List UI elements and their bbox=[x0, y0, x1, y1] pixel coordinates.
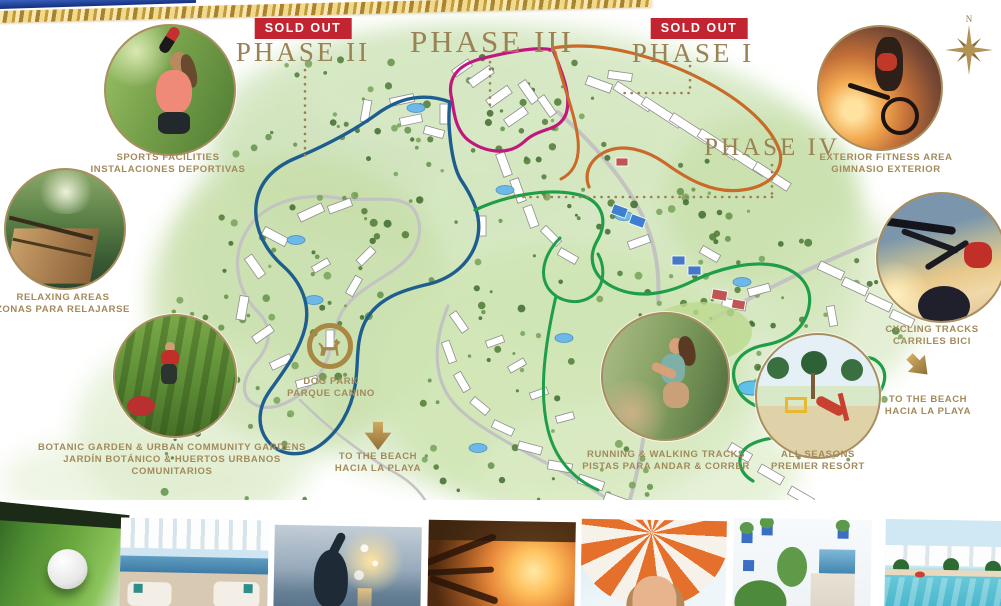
bike-wheel bbox=[881, 97, 919, 135]
cushion-1 bbox=[134, 584, 143, 593]
callout-cycling-caption: CYCLING TRACKS CARRILES BICI bbox=[767, 324, 1001, 348]
dark-backdrop bbox=[0, 501, 129, 531]
phase-1-label: PHASE I bbox=[632, 38, 754, 69]
beach-arrow-down-icon bbox=[363, 421, 393, 451]
pool-deck bbox=[885, 569, 1001, 577]
red-crops bbox=[127, 396, 155, 416]
photo-pool-resort bbox=[884, 519, 1001, 606]
athlete-shirt bbox=[877, 53, 897, 71]
photo-splash bbox=[273, 525, 422, 606]
front-wheel bbox=[918, 286, 970, 323]
beach-center-caption: TO THE BEACH HACIA LA PLAYA bbox=[213, 451, 543, 475]
sea-view bbox=[819, 549, 855, 574]
sold-out-badge-phase-2: SOLD OUT bbox=[255, 18, 352, 39]
photo-strip bbox=[0, 500, 1001, 606]
sky-gap bbox=[36, 170, 96, 214]
callout-allseasons-caption: ALL SEASONS PREMIER RESORT bbox=[653, 449, 983, 473]
splash-drop-1 bbox=[360, 544, 368, 552]
runner-torso bbox=[663, 382, 689, 408]
player-shorts bbox=[158, 112, 190, 134]
cushion-2 bbox=[244, 584, 253, 593]
callout-fitness-photo bbox=[817, 25, 943, 151]
trail-path bbox=[601, 380, 671, 441]
callout-relaxing-photo bbox=[4, 168, 126, 290]
dog-park-badge bbox=[307, 323, 353, 369]
player-shirt bbox=[156, 70, 192, 114]
palm-3 bbox=[841, 359, 863, 381]
phase-2-label: PHASE II bbox=[236, 37, 370, 68]
callout-cycling-photo bbox=[876, 192, 1001, 323]
dog-icon bbox=[317, 335, 343, 357]
plants-mid bbox=[777, 547, 808, 588]
svg-text:N: N bbox=[966, 14, 973, 24]
photo-golf bbox=[0, 501, 129, 606]
sofa-right bbox=[213, 581, 260, 606]
rider-shorts bbox=[964, 242, 992, 268]
bather-silhouette bbox=[313, 549, 348, 606]
palm-2 bbox=[801, 351, 827, 375]
photo-terrace bbox=[119, 517, 269, 606]
phase-3-label: PHASE III bbox=[410, 24, 574, 60]
callout-relaxing-caption: RELAXING AREAS ZONAS PARA RELAJARSE bbox=[0, 292, 228, 316]
masterplan-page: SOLD OUT PHASE II PHASE III SOLD OUT PHA… bbox=[0, 0, 1001, 606]
palm-1 bbox=[767, 357, 789, 379]
beach-right-caption: TO THE BEACH HACIA LA PLAYA bbox=[763, 394, 1001, 418]
sun-reflection bbox=[357, 588, 372, 606]
pool-ripples bbox=[884, 577, 1001, 606]
photo-sunset-palms bbox=[427, 520, 576, 606]
dog-park-caption: DOG PARK PARQUE CANINO bbox=[166, 376, 496, 400]
callout-sports-photo bbox=[104, 24, 236, 156]
sold-out-badge-phase-1: SOLD OUT bbox=[651, 18, 748, 39]
splash-drop-2 bbox=[372, 560, 378, 566]
golf-ball bbox=[46, 547, 90, 591]
palm-frond-2 bbox=[427, 566, 494, 576]
compass-rose-icon: N bbox=[943, 12, 995, 78]
palm-canopy bbox=[429, 520, 576, 543]
blue-pot-3 bbox=[743, 560, 754, 571]
callout-running-photo bbox=[601, 312, 730, 441]
photo-village bbox=[732, 518, 872, 606]
handlebar bbox=[882, 217, 956, 235]
plants-bottom bbox=[734, 580, 787, 606]
palm-frond-3 bbox=[428, 575, 498, 605]
street-floor bbox=[810, 573, 855, 606]
photo-hat-woman bbox=[580, 519, 727, 606]
callout-fitness-caption: EXTERIOR FITNESS AREA GIMNASIO EXTERIOR bbox=[721, 152, 1001, 176]
